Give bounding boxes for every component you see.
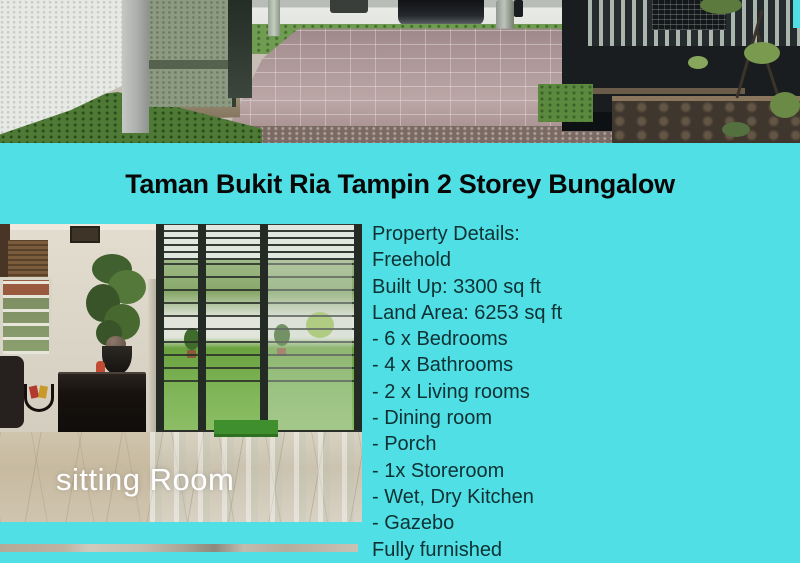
glass-doors — [156, 224, 362, 438]
concrete-post — [122, 0, 149, 133]
property-details: Property Details: Freehold Built Up: 330… — [372, 221, 792, 563]
grass-patch — [538, 84, 593, 122]
glass-tint — [268, 260, 352, 430]
tree-leaves — [770, 92, 800, 118]
detail-line: - 2 x Living rooms — [372, 379, 792, 405]
detail-line: - Porch — [372, 431, 792, 457]
door-frame — [354, 224, 362, 438]
porch-pillar — [268, 0, 280, 36]
detail-line: Freehold — [372, 247, 792, 273]
detail-line: Land Area: 6253 sq ft — [372, 300, 792, 326]
sitting-room-caption: sitting Room — [56, 462, 234, 498]
porch-furniture — [330, 0, 368, 13]
tv-cabinet — [58, 372, 146, 436]
detail-line: Built Up: 3300 sq ft — [372, 274, 792, 300]
door-frame — [260, 224, 268, 438]
parked-car — [398, 0, 484, 26]
wall-picture — [70, 226, 100, 243]
door-frame — [198, 224, 206, 438]
green-wall — [149, 0, 236, 107]
detail-line: - 4 x Bathrooms — [372, 352, 792, 378]
sofa — [0, 356, 24, 428]
detail-line: - 1x Storeroom — [372, 458, 792, 484]
bottom-photo-strip — [0, 544, 358, 552]
left-window — [0, 277, 52, 357]
door-frame — [156, 224, 164, 438]
tree-leaves — [688, 56, 708, 69]
porch-object — [514, 0, 523, 17]
plant-pot — [102, 346, 132, 374]
detail-line: Property Details: — [372, 221, 792, 247]
green-doormat — [214, 420, 278, 437]
green-wall-band — [149, 60, 232, 69]
sitting-room-photo: sitting Room — [0, 224, 362, 522]
wall-pipe — [148, 279, 156, 434]
top-photo-driveway — [0, 0, 800, 143]
detail-line: Fully furnished — [372, 537, 792, 563]
corner-background-sliver — [793, 0, 800, 28]
detail-line: - Gazebo — [372, 510, 792, 536]
transom-louvres — [156, 224, 362, 260]
page-title: Taman Bukit Ria Tampin 2 Storey Bungalow — [0, 160, 800, 208]
tree-leaves — [722, 122, 750, 137]
detail-line: - Wet, Dry Kitchen — [372, 484, 792, 510]
detail-line: - Dining room — [372, 405, 792, 431]
tree-leaves — [744, 42, 780, 64]
detail-line: - 6 x Bedrooms — [372, 326, 792, 352]
side-doorway — [228, 0, 252, 98]
